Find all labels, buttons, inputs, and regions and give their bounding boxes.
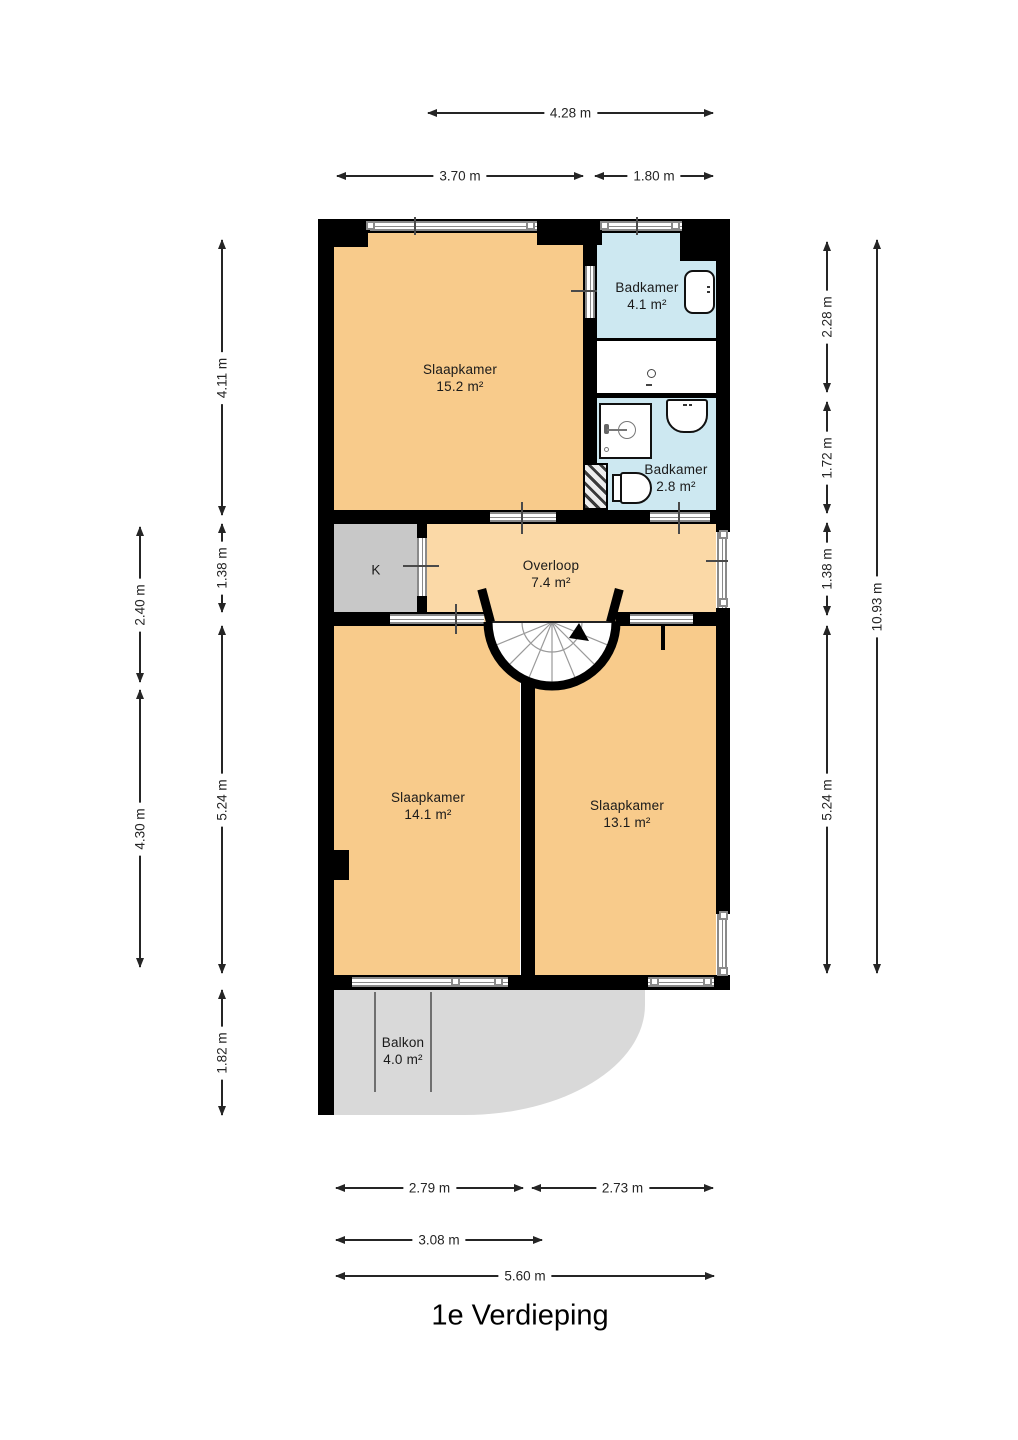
dimension-line: 1.72 m <box>818 402 836 513</box>
shape: 15.2 m² <box>423 378 497 395</box>
balcony-guide-line <box>430 992 432 1092</box>
ar <box>873 239 881 249</box>
dimension-line: 5.60 m <box>336 1267 714 1285</box>
shape <box>707 291 710 293</box>
wall-corner-tl <box>318 219 368 247</box>
shape: 7.4 m² <box>523 574 579 591</box>
ar <box>335 1184 345 1192</box>
room-label-slaapkamer-1: Slaapkamer15.2 m² <box>423 361 497 395</box>
shaft-hatch <box>583 463 608 510</box>
door-leaf <box>661 626 665 650</box>
bathtub-faucet <box>646 384 652 386</box>
dimension-label: 2.40 m <box>133 578 148 631</box>
washbasin <box>684 270 715 314</box>
window-divider-tick <box>706 560 728 562</box>
ar <box>136 673 144 683</box>
window-joint <box>494 977 503 986</box>
dimension-label: 2.79 m <box>403 1181 456 1196</box>
shape <box>618 421 636 439</box>
wall-corner-tr <box>680 219 730 261</box>
dimension-label: 1.72 m <box>820 431 835 484</box>
door-tick <box>403 565 439 567</box>
dimension-label: 2.28 m <box>820 290 835 343</box>
ar <box>218 1106 226 1116</box>
ar <box>531 1184 541 1192</box>
plan-title: 1e Verdieping <box>431 1300 608 1333</box>
dimension-label: 5.60 m <box>498 1269 551 1284</box>
room-label-badkamer-2: Badkamer2.8 m² <box>644 461 707 495</box>
dimension-label: 1.80 m <box>627 169 680 184</box>
ar <box>218 239 226 249</box>
dimension-line: 4.28 m <box>428 104 713 122</box>
dimension-label: 5.24 m <box>215 773 230 826</box>
door-tick <box>571 290 597 292</box>
room-label-slaapkamer-2: Slaapkamer14.1 m² <box>391 789 465 823</box>
dimension-line: 1.82 m <box>213 990 231 1115</box>
shape <box>604 447 609 452</box>
ar <box>335 1236 345 1244</box>
ar <box>574 172 584 180</box>
ar <box>823 383 831 393</box>
window-right-1 <box>717 532 727 608</box>
door-tick <box>521 502 523 534</box>
dimension-label: 1.82 m <box>215 1026 230 1079</box>
dimension-line: 5.24 m <box>213 626 231 973</box>
shape: Badkamer <box>615 279 678 296</box>
ar <box>705 1272 715 1280</box>
ar <box>136 958 144 968</box>
shape: Overloop <box>523 557 579 574</box>
dimension-line: 1.38 m <box>818 523 836 615</box>
ar <box>335 1272 345 1280</box>
ar <box>873 964 881 974</box>
dimension-label: 1.38 m <box>215 541 230 594</box>
window-joint <box>526 221 535 230</box>
dimension-line: 3.70 m <box>337 167 583 185</box>
dimension-label: 3.08 m <box>412 1233 465 1248</box>
ar <box>218 625 226 635</box>
dimension-line: 1.38 m <box>213 524 231 612</box>
shape <box>707 286 710 288</box>
dimension-line: 4.30 m <box>131 690 149 967</box>
ar <box>823 522 831 532</box>
room-label-closet: K <box>371 562 380 579</box>
ar <box>823 401 831 411</box>
shape <box>689 404 692 406</box>
dimension-label: 2.73 m <box>596 1181 649 1196</box>
door-slaapkamer3 <box>630 614 693 624</box>
wall-bath-thin-2 <box>597 393 716 398</box>
dimension-line: 4.11 m <box>213 240 231 515</box>
balcony-guide-line <box>374 992 376 1092</box>
wall-pier-top <box>537 219 602 245</box>
ar <box>136 689 144 699</box>
window-divider-tick <box>455 604 457 634</box>
dimension-label: 4.30 m <box>133 802 148 855</box>
dimension-label: 10.93 m <box>870 576 885 637</box>
room-balkon <box>334 990 645 1115</box>
window-joint <box>600 221 609 230</box>
window-divider-tick <box>636 217 638 235</box>
door-closet <box>417 538 427 596</box>
dimension-line: 5.24 m <box>818 626 836 973</box>
window-top-1 <box>370 221 537 231</box>
shape: 2.8 m² <box>644 478 707 495</box>
door-badkamer2 <box>650 512 710 522</box>
wall-right-top <box>716 219 730 532</box>
shape: 4.1 m² <box>615 296 678 313</box>
window-bottom-1 <box>352 977 508 987</box>
shape: K <box>371 562 380 579</box>
ar <box>514 1184 524 1192</box>
dimension-label: 4.28 m <box>544 106 597 121</box>
shape: 14.1 m² <box>391 806 465 823</box>
shape: Balkon <box>382 1034 424 1051</box>
dimension-label: 4.11 m <box>215 351 230 403</box>
window-divider-tick <box>414 217 416 235</box>
ar <box>594 172 604 180</box>
shape: Slaapkamer <box>391 789 465 806</box>
room-label-slaapkamer-3: Slaapkamer13.1 m² <box>590 797 664 831</box>
dimension-line: 2.79 m <box>336 1179 523 1197</box>
window-joint <box>719 911 728 920</box>
dimension-line: 1.80 m <box>595 167 713 185</box>
window-hall-bedroom <box>390 614 484 624</box>
ar <box>218 506 226 516</box>
door-slaapkamer1 <box>490 512 556 522</box>
window-joint <box>719 530 728 539</box>
ar <box>218 964 226 974</box>
bathtub-drain <box>647 369 656 378</box>
ar <box>823 241 831 251</box>
ar <box>336 172 346 180</box>
dimension-line: 3.08 m <box>336 1231 542 1249</box>
window-top-2 <box>602 221 682 231</box>
dimension-line: 2.73 m <box>532 1179 713 1197</box>
ar <box>704 109 714 117</box>
wall-divider-bedrooms <box>521 678 535 975</box>
dimension-label: 1.38 m <box>820 542 835 595</box>
door-badkamer1 <box>585 266 595 318</box>
ar <box>136 526 144 536</box>
door-tick <box>678 502 680 534</box>
window-joint <box>650 977 659 986</box>
ar <box>218 603 226 613</box>
shape <box>683 404 687 406</box>
ar <box>823 606 831 616</box>
ar <box>823 504 831 514</box>
ar <box>218 523 226 533</box>
window-joint <box>719 598 728 607</box>
room-label-overloop: Overloop7.4 m² <box>523 557 579 591</box>
ar <box>533 1236 543 1244</box>
window-joint <box>671 221 680 230</box>
ar <box>704 1184 714 1192</box>
dimension-line: 2.40 m <box>131 527 149 682</box>
room-label-badkamer-1: Badkamer4.1 m² <box>615 279 678 313</box>
ar <box>704 172 714 180</box>
wall-bath-thin-1 <box>597 338 716 341</box>
shape: Badkamer <box>644 461 707 478</box>
window-joint <box>451 977 460 986</box>
window-joint <box>719 967 728 976</box>
washbasin-2 <box>666 399 708 433</box>
floor-plan-canvas: Slaapkamer15.2 m² Badkamer4.1 m² Badkame… <box>0 0 1018 1440</box>
ar <box>218 989 226 999</box>
ar <box>823 625 831 635</box>
spiral-staircase <box>482 608 622 694</box>
dimension-line: 10.93 m <box>868 240 886 973</box>
ar <box>823 964 831 974</box>
bath-area-white <box>597 341 716 393</box>
shower <box>599 403 652 459</box>
dimension-label: 5.24 m <box>820 773 835 826</box>
wall-chimney-bump <box>334 850 349 880</box>
shape: Slaapkamer <box>423 361 497 378</box>
dimension-line: 2.28 m <box>818 242 836 392</box>
dimension-label: 3.70 m <box>433 169 486 184</box>
ar <box>427 109 437 117</box>
shape: 13.1 m² <box>590 814 664 831</box>
wall-right-mid <box>716 608 730 914</box>
room-label-balkon: Balkon4.0 m² <box>382 1034 424 1068</box>
window-joint <box>703 977 712 986</box>
window-joint <box>366 221 375 230</box>
shape: Slaapkamer <box>590 797 664 814</box>
shape: 4.0 m² <box>382 1051 424 1068</box>
